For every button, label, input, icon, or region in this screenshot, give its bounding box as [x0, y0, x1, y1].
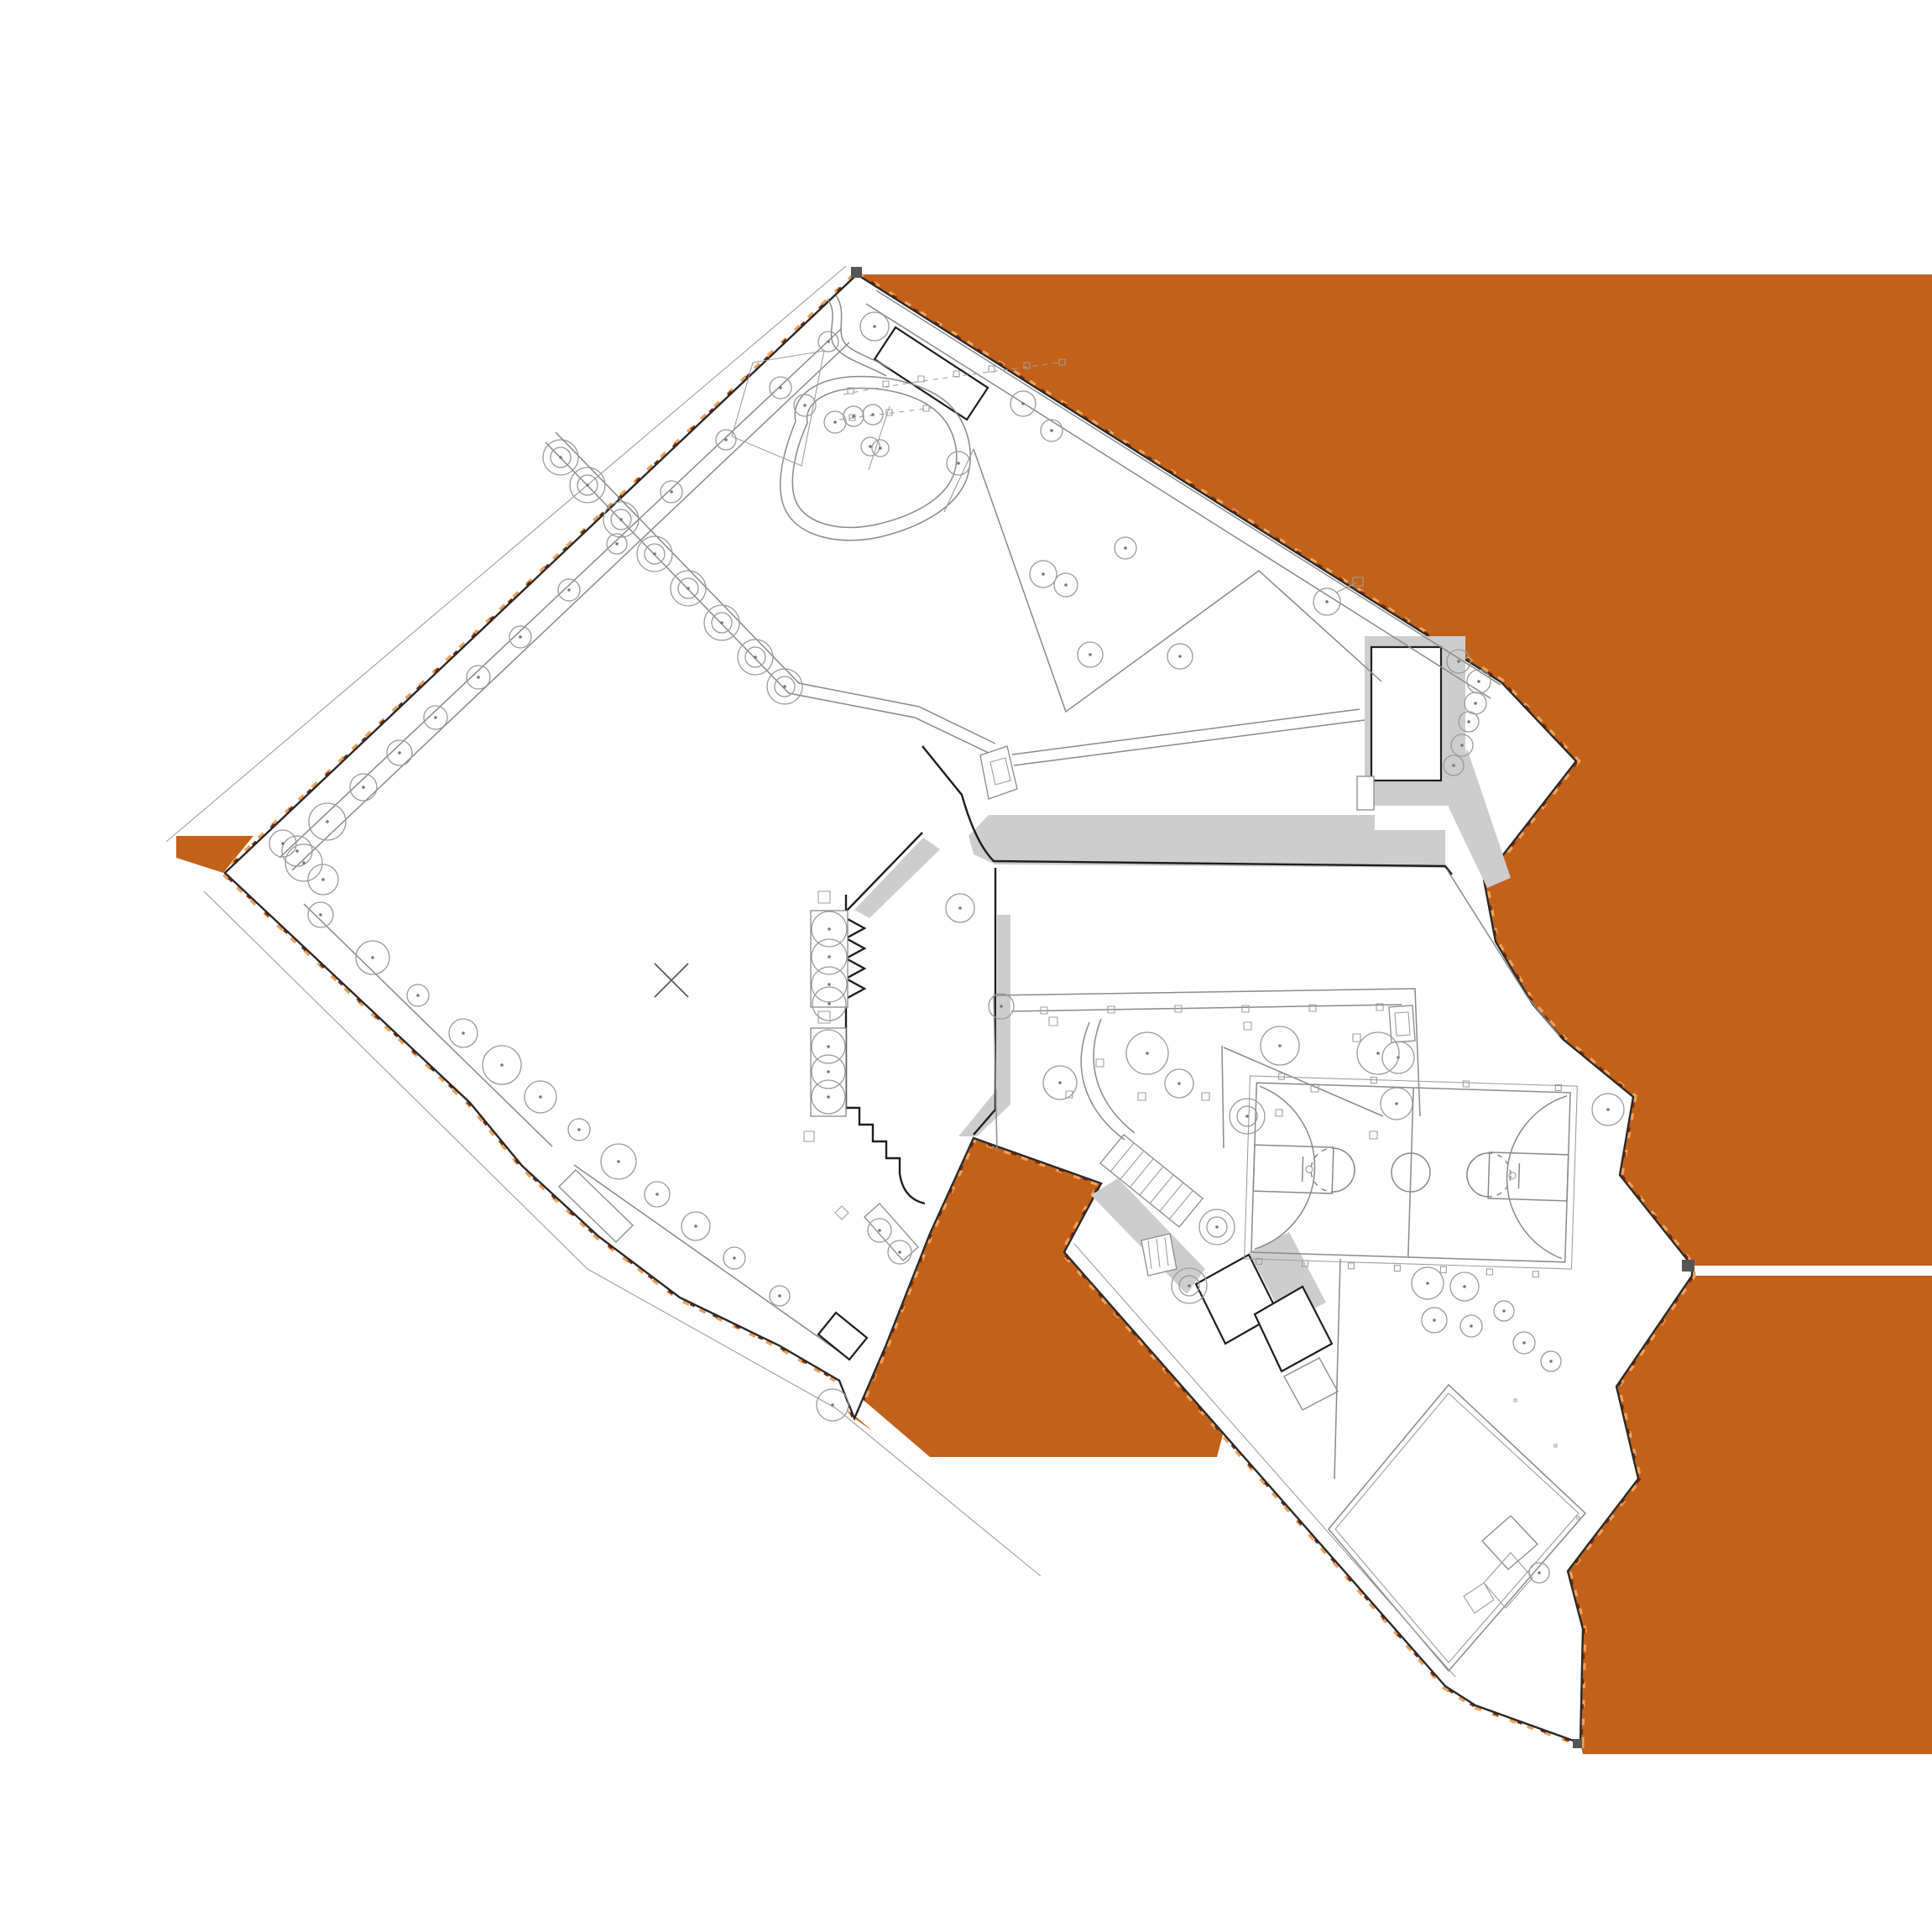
tree-center — [398, 751, 401, 755]
tree-center — [828, 927, 831, 931]
planter-tree-center — [653, 552, 656, 556]
tree-center — [1474, 702, 1477, 705]
planter-tree — [543, 440, 578, 475]
tree-center — [477, 676, 480, 679]
tree-center — [957, 462, 960, 465]
tree-center — [1042, 572, 1045, 576]
tree-center — [1426, 1282, 1429, 1285]
tree-center — [1467, 720, 1470, 723]
tree-center — [500, 1063, 504, 1067]
tree-center — [1502, 1309, 1506, 1313]
tree-center — [869, 445, 872, 448]
tree-center — [1460, 744, 1464, 747]
tree-center — [302, 861, 305, 864]
planter-tree-center — [754, 655, 757, 659]
tree-center — [828, 983, 831, 986]
tree-center — [319, 913, 322, 916]
tree-center — [1463, 1285, 1466, 1288]
tree-center — [733, 1256, 736, 1260]
tree-center — [615, 542, 619, 546]
tree-center — [655, 1193, 659, 1196]
tree-center — [539, 1095, 542, 1099]
tree-center — [295, 849, 299, 853]
tree-center — [1522, 1341, 1526, 1345]
tree-center — [462, 1031, 465, 1035]
tree-center — [326, 820, 329, 823]
tree-center — [519, 635, 522, 639]
tree-center — [694, 1224, 697, 1228]
backboard-right — [1518, 1163, 1519, 1188]
planter-tree-center — [720, 621, 723, 624]
tree-center — [1477, 680, 1480, 683]
planter-tree-center — [687, 587, 690, 590]
building-east — [1371, 647, 1441, 781]
tree-center — [873, 325, 876, 328]
site-plan-canvas — [0, 0, 1932, 1932]
tree-center — [434, 716, 437, 719]
tree-center — [871, 413, 875, 416]
planter-tree-center — [1245, 1115, 1249, 1118]
tree-center — [852, 415, 855, 418]
tree-center — [321, 878, 325, 881]
tree-center — [833, 420, 837, 424]
tree-center — [779, 386, 782, 389]
tree-center — [724, 438, 728, 441]
tree-center — [1538, 1571, 1541, 1574]
planter-tree-center — [1215, 1225, 1219, 1229]
tree-center — [281, 842, 285, 845]
field-monument-outer — [1389, 1005, 1415, 1042]
tree-center — [567, 588, 571, 592]
tree-center — [1278, 1044, 1282, 1047]
tree-center — [617, 1160, 620, 1163]
tree-center — [1089, 653, 1092, 656]
tree-center — [831, 1403, 834, 1407]
tree-center — [878, 1229, 881, 1232]
tree-center — [1124, 546, 1127, 550]
tree-center — [416, 994, 420, 997]
tree-center — [778, 1294, 781, 1298]
tree-center — [827, 1045, 830, 1048]
tree-center — [1549, 1360, 1553, 1363]
tree-center — [827, 340, 830, 343]
tree-center — [1457, 660, 1460, 663]
planter-tree-center — [586, 483, 589, 487]
tree-center — [1000, 1005, 1003, 1008]
tree-center — [803, 404, 807, 407]
tree-center — [362, 786, 365, 789]
planter-tree-center — [1188, 1284, 1191, 1287]
tree-center — [1433, 1318, 1436, 1322]
planter-tree — [570, 467, 605, 503]
tree-center — [1376, 1052, 1380, 1055]
tree-center — [827, 1095, 830, 1099]
tree-center — [898, 1251, 901, 1254]
tree-center — [1050, 429, 1053, 432]
building-east-annex — [1357, 776, 1374, 810]
tree-center — [1058, 1081, 1062, 1084]
tree-center — [1395, 1102, 1398, 1105]
tree-center — [577, 1128, 581, 1131]
tree-center — [1606, 1108, 1610, 1111]
tree-center — [958, 906, 962, 910]
tree-center — [1146, 1052, 1149, 1055]
tree-center — [1178, 655, 1182, 658]
tree-center — [828, 955, 831, 958]
tree-center — [828, 1002, 831, 1005]
tree-center — [879, 446, 882, 450]
tree-center — [1452, 764, 1455, 767]
corridor-pavement — [969, 815, 1445, 868]
planter-tree-center — [559, 456, 562, 459]
tree-center — [1021, 402, 1025, 405]
tree-center — [371, 956, 374, 959]
site-plan-svg — [0, 0, 1932, 1932]
stairs-lower — [1141, 1234, 1177, 1276]
tree-center — [1325, 600, 1329, 603]
tree-center — [1470, 1324, 1473, 1328]
tree-center — [1177, 1082, 1181, 1085]
tree-center — [1064, 583, 1068, 587]
planter-tree-center — [783, 685, 786, 688]
tree-center — [827, 1070, 830, 1073]
tree-center — [670, 490, 673, 493]
backboard-left — [1303, 1157, 1303, 1182]
planter-tree-center — [619, 518, 623, 521]
